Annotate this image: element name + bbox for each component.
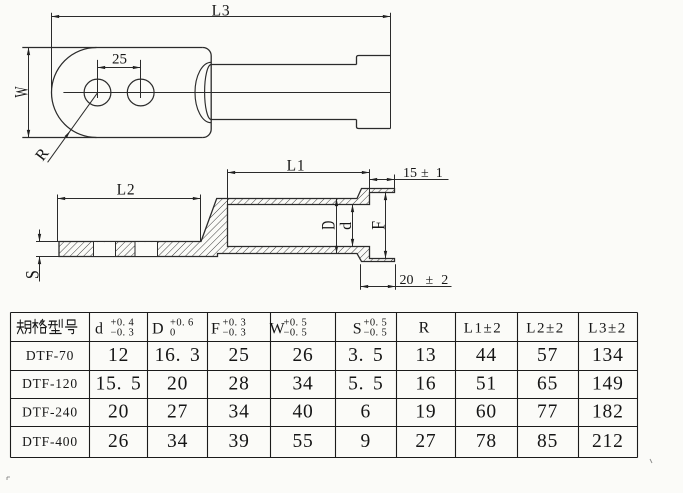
svg-text:34: 34: [167, 431, 188, 452]
svg-text:27: 27: [167, 402, 188, 423]
svg-text:40: 40: [292, 402, 313, 423]
svg-text:−0. 5: −0. 5: [364, 328, 388, 339]
svg-text:−0. 3: −0. 3: [111, 328, 135, 339]
svg-text:20±2: 20±2: [400, 273, 449, 288]
svg-text:d: d: [95, 321, 103, 338]
svg-text:6: 6: [361, 402, 372, 423]
svg-text:85: 85: [537, 431, 558, 452]
svg-text:78: 78: [476, 431, 497, 452]
svg-text:34: 34: [292, 373, 313, 394]
svg-text:13: 13: [415, 345, 436, 366]
svg-text:5. 5: 5. 5: [348, 373, 383, 394]
svg-text:182: 182: [592, 402, 624, 423]
svg-text:L2: L2: [117, 181, 136, 198]
svg-text:0: 0: [170, 328, 176, 339]
svg-text:L2±2: L2±2: [526, 321, 564, 337]
svg-text:57: 57: [537, 345, 558, 366]
svg-text:9: 9: [361, 431, 372, 452]
svg-text:D: D: [319, 221, 340, 230]
svg-text:28: 28: [229, 373, 250, 394]
svg-text:12: 12: [108, 345, 129, 366]
svg-text:L1±2: L1±2: [464, 321, 502, 337]
svg-text:DTF-240: DTF-240: [22, 405, 78, 420]
svg-text:51: 51: [476, 373, 497, 394]
svg-text:DTF-400: DTF-400: [22, 434, 78, 449]
svg-text:55: 55: [292, 431, 313, 452]
svg-text:26: 26: [292, 345, 313, 366]
svg-text:27: 27: [415, 431, 436, 452]
svg-text:F: F: [211, 321, 220, 338]
svg-text:L3: L3: [212, 2, 231, 19]
svg-text:R: R: [419, 320, 430, 337]
svg-text:S: S: [353, 321, 362, 338]
svg-text:65: 65: [537, 373, 558, 394]
svg-text:212: 212: [592, 431, 624, 452]
svg-text:19: 19: [415, 402, 436, 423]
svg-text:DTF-120: DTF-120: [22, 376, 78, 391]
svg-text:S: S: [22, 270, 43, 279]
svg-text:44: 44: [476, 345, 497, 366]
svg-text:34: 34: [229, 402, 250, 423]
svg-text:16. 3: 16. 3: [155, 345, 201, 366]
svg-text:−0. 3: −0. 3: [223, 328, 247, 339]
svg-text:25: 25: [112, 52, 127, 68]
svg-text:15±1: 15±1: [403, 166, 443, 181]
svg-text:15. 5: 15. 5: [96, 373, 142, 394]
svg-text:149: 149: [592, 373, 624, 394]
svg-text:D: D: [152, 321, 164, 338]
svg-text:DTF-70: DTF-70: [26, 348, 74, 363]
svg-text:39: 39: [229, 431, 250, 452]
svg-text:L3±2: L3±2: [588, 321, 626, 337]
svg-text:26: 26: [108, 431, 129, 452]
svg-text:16: 16: [415, 373, 436, 394]
svg-text:25: 25: [229, 345, 250, 366]
svg-text:60: 60: [476, 402, 497, 423]
svg-text:3. 5: 3. 5: [348, 345, 383, 366]
svg-text:L1: L1: [287, 158, 306, 175]
svg-text:134: 134: [592, 345, 624, 366]
svg-text:F: F: [368, 221, 389, 230]
svg-text:d: d: [338, 222, 355, 230]
svg-text:77: 77: [537, 402, 558, 423]
svg-text:W: W: [11, 86, 32, 97]
svg-text:20: 20: [167, 373, 188, 394]
svg-text:20: 20: [108, 402, 129, 423]
svg-text:R: R: [32, 145, 52, 164]
svg-text:−0. 5: −0. 5: [284, 328, 308, 339]
